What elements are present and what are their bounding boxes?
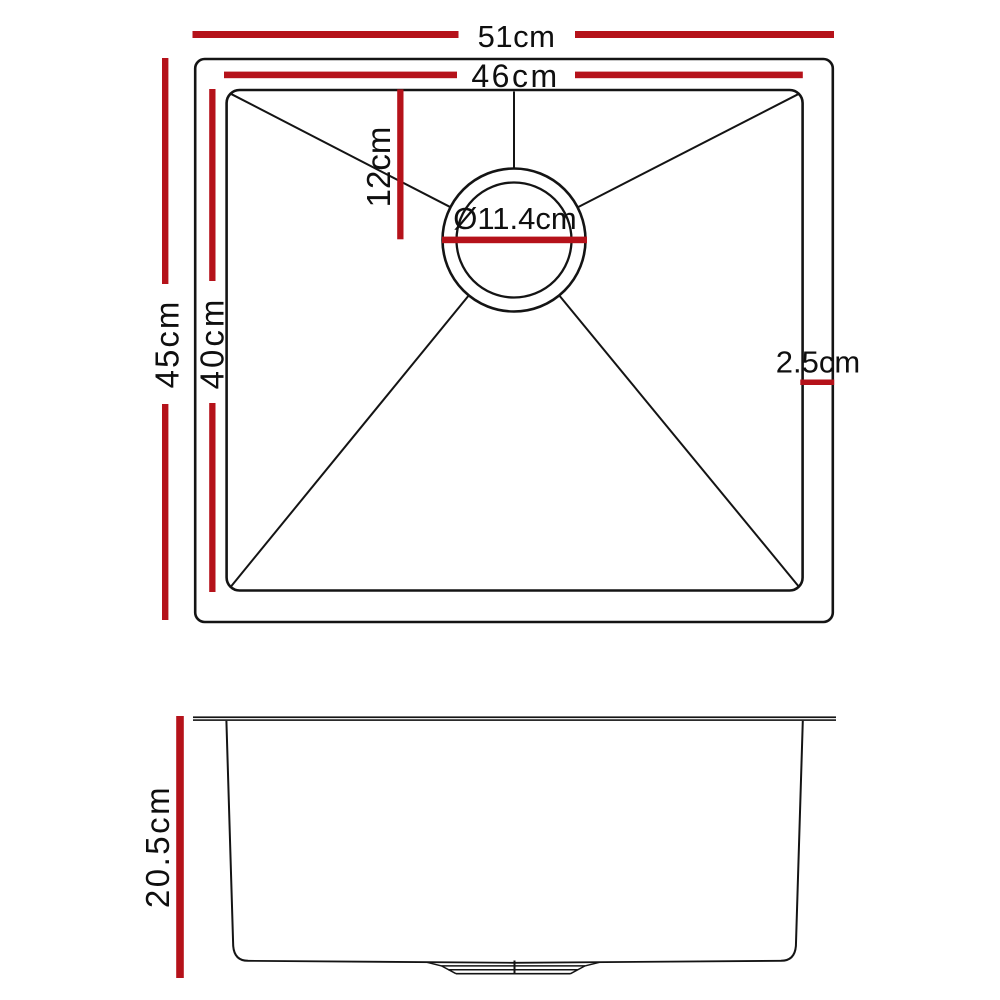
svg-text:Ø11.4cm: Ø11.4cm xyxy=(453,201,576,236)
svg-text:2.5cm: 2.5cm xyxy=(776,345,860,380)
svg-text:46cm: 46cm xyxy=(471,58,559,94)
svg-text:12cm: 12cm xyxy=(360,127,397,208)
svg-text:51cm: 51cm xyxy=(478,19,556,54)
svg-text:20.5cm: 20.5cm xyxy=(139,785,176,908)
svg-text:45cm: 45cm xyxy=(149,300,186,389)
svg-text:40cm: 40cm xyxy=(194,297,231,390)
